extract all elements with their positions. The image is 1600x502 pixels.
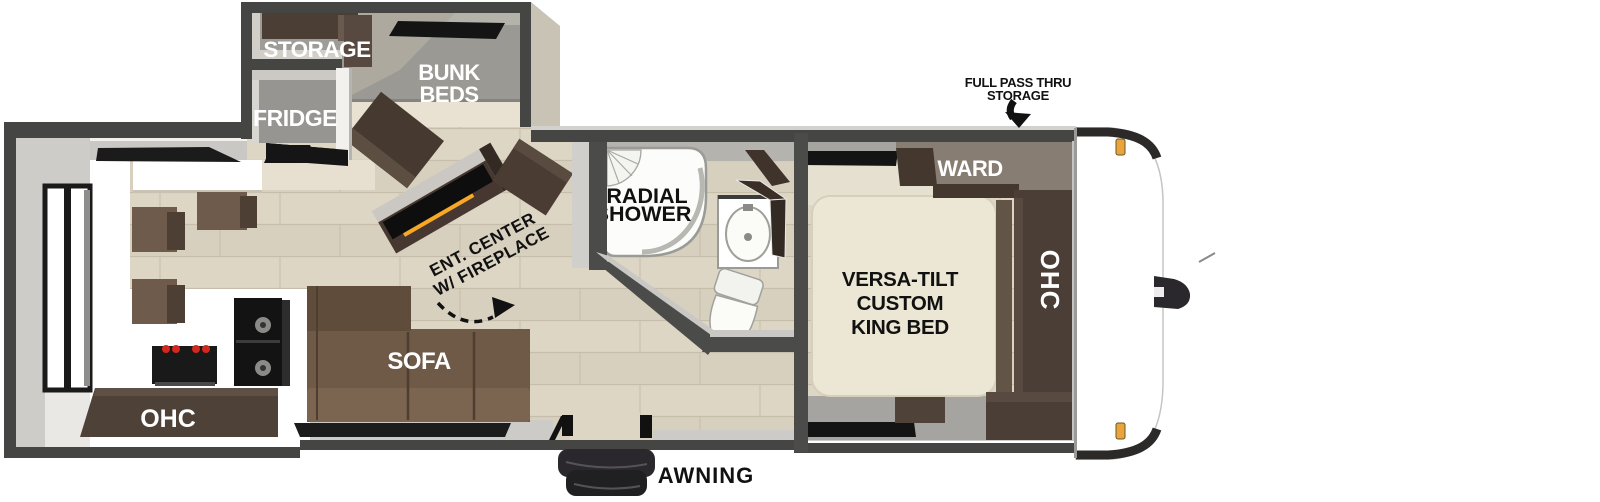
- svg-text:KING BED: KING BED: [851, 316, 949, 339]
- svg-text:VERSA-TILT: VERSA-TILT: [842, 268, 959, 291]
- svg-text:STORAGE: STORAGE: [263, 37, 371, 62]
- svg-text:AWNING: AWNING: [658, 463, 754, 488]
- svg-text:OHC: OHC: [140, 405, 196, 433]
- svg-text:BEDS: BEDS: [419, 82, 478, 107]
- svg-text:OHC: OHC: [1035, 250, 1065, 311]
- svg-text:CUSTOM: CUSTOM: [857, 292, 944, 315]
- svg-text:FRIDGE: FRIDGE: [253, 105, 337, 131]
- svg-text:WARD: WARD: [937, 156, 1002, 181]
- svg-text:SOFA: SOFA: [387, 348, 451, 375]
- svg-text:STORAGE: STORAGE: [987, 88, 1050, 103]
- svg-text:SHOWER: SHOWER: [595, 202, 692, 226]
